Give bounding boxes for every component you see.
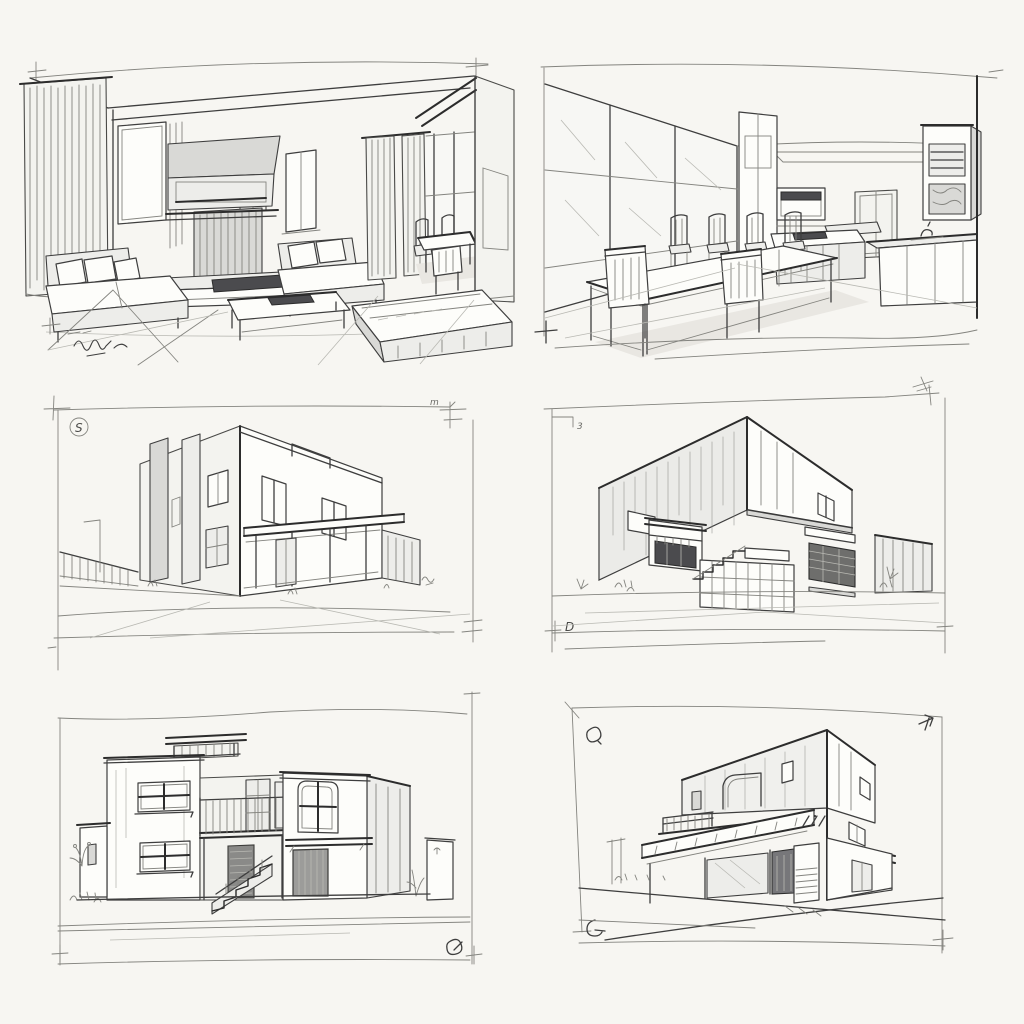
annex-left	[77, 823, 110, 897]
right-block	[280, 772, 410, 900]
corner-scribble-note: m	[430, 398, 439, 408]
panel-living-room	[18, 50, 518, 365]
sketch-sheet: { "page": { "background": "#f7f6f2", "pa…	[0, 0, 1024, 1024]
panel-dining-kitchen	[525, 50, 1015, 360]
bottom-left-note: D	[565, 620, 574, 634]
balcony-box	[645, 518, 706, 571]
top-left-note: 3	[577, 422, 583, 432]
cantilever-building-sketch: 3 D	[525, 365, 955, 665]
right-hutch-cabinet	[921, 125, 981, 220]
house-external-stair-sketch	[50, 688, 500, 978]
main-block-left	[104, 755, 204, 900]
panel-house-external-stair	[50, 688, 500, 978]
corner-building-awning-sketch	[555, 688, 1005, 963]
recessed-glazing-right	[805, 527, 855, 597]
dining-kitchen-sketch	[525, 50, 1015, 360]
side-wall-right	[875, 535, 932, 593]
circled-letter-note: S	[75, 421, 83, 435]
side-wall-right	[382, 530, 434, 585]
building	[140, 426, 382, 596]
panel-modern-building-canopy: S m	[30, 380, 485, 670]
ground-lines	[58, 894, 470, 940]
panel-corner-building-awning	[555, 688, 1005, 963]
center-curtains	[362, 132, 430, 280]
garden-wall-right	[407, 838, 455, 900]
loop-scribble-top-left	[587, 727, 601, 744]
coffee-table	[228, 292, 350, 340]
loop-scribble-bottom-left	[587, 920, 605, 936]
fence-left	[60, 520, 138, 586]
sign-poles-left	[607, 838, 625, 884]
modern-building-canopy-sketch: S m	[30, 380, 485, 670]
living-room-sketch	[18, 50, 518, 365]
stair-block	[693, 546, 794, 612]
panel-cantilever-building: 3 D	[525, 365, 955, 665]
arrow-scribble-top-right	[919, 715, 933, 730]
